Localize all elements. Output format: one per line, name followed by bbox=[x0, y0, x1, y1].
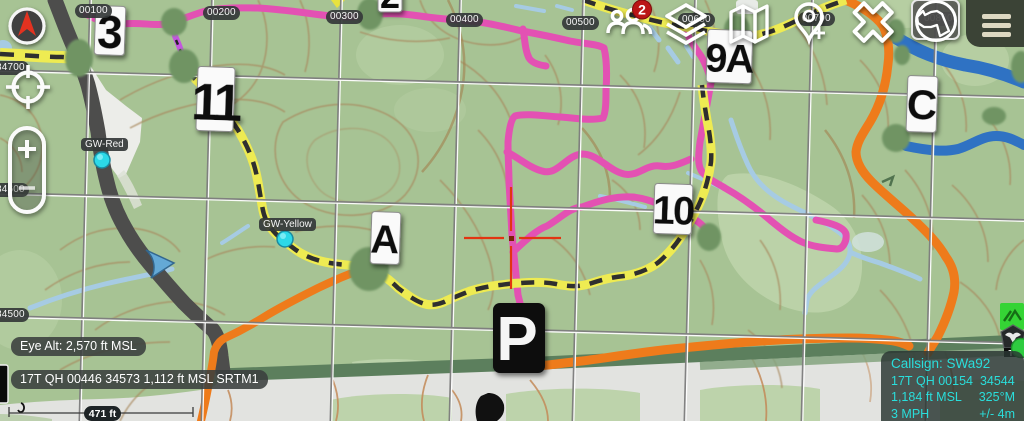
svg-text:P: P bbox=[496, 305, 537, 374]
svg-text:11: 11 bbox=[190, 73, 242, 133]
svg-text:A: A bbox=[370, 218, 400, 263]
svg-text:2: 2 bbox=[638, 2, 646, 18]
svg-text:2: 2 bbox=[380, 0, 400, 16]
svg-text:10: 10 bbox=[652, 188, 695, 233]
svg-text:C: C bbox=[906, 80, 938, 128]
svg-text:471 ft: 471 ft bbox=[89, 408, 117, 420]
